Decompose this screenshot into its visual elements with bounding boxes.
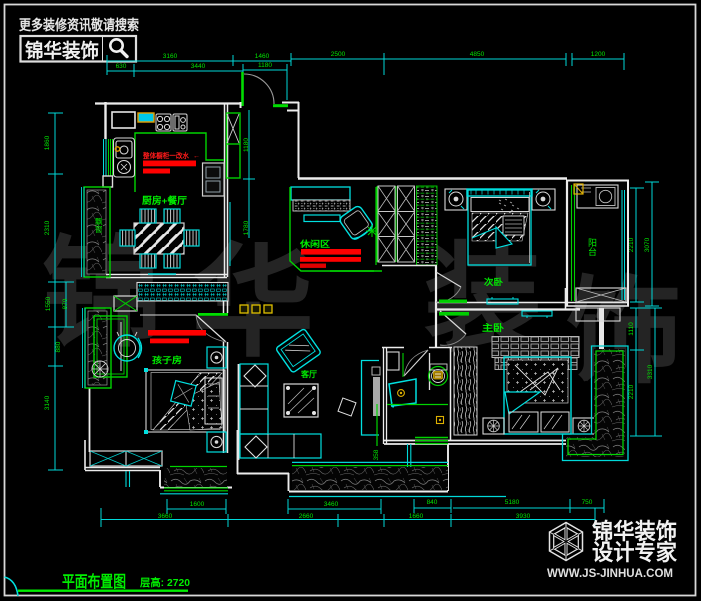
svg-text:2660: 2660	[299, 513, 314, 520]
svg-text:2310: 2310	[44, 220, 51, 235]
svg-text:358: 358	[373, 449, 380, 460]
svg-text:更多装修资讯敬请搜索: 更多装修资讯敬请搜索	[19, 17, 139, 33]
svg-text:WWW.JS-JINHUA.COM: WWW.JS-JINHUA.COM	[547, 566, 673, 580]
svg-text:休闲区: 休闲区	[299, 239, 331, 249]
svg-text:2210: 2210	[628, 384, 635, 399]
svg-text:台: 台	[588, 246, 597, 257]
svg-text:3440: 3440	[191, 63, 206, 70]
svg-text:锦华装饰: 锦华装饰	[25, 39, 99, 62]
svg-text:3930: 3930	[516, 513, 531, 520]
svg-text:窗: 窗	[95, 224, 103, 234]
svg-text:880: 880	[55, 341, 62, 352]
svg-text:1460: 1460	[255, 53, 270, 60]
svg-text:整体橱柜一改水: 整体橱柜一改水	[142, 151, 190, 160]
svg-text:1600: 1600	[190, 501, 205, 508]
svg-text:3070: 3070	[644, 237, 651, 252]
svg-text:客厅: 客厅	[300, 369, 317, 379]
svg-text:3140: 3140	[44, 395, 51, 410]
svg-text:1660: 1660	[409, 513, 424, 520]
svg-text:630: 630	[116, 63, 127, 70]
svg-text:1550: 1550	[45, 296, 52, 311]
svg-text:1110: 1110	[628, 322, 635, 336]
svg-text:←: ←	[193, 153, 200, 160]
svg-text:5180: 5180	[505, 499, 520, 506]
svg-text:1200: 1200	[591, 51, 606, 58]
svg-text:设计专家: 设计专家	[592, 540, 678, 565]
svg-text:主卧: 主卧	[482, 322, 504, 333]
svg-text:厨房+餐厅: 厨房+餐厅	[142, 195, 188, 207]
svg-text:1180: 1180	[258, 62, 272, 69]
svg-text:870: 870	[62, 298, 69, 309]
svg-text:3660: 3660	[158, 513, 173, 520]
svg-text:3160: 3160	[163, 53, 178, 60]
svg-text:层高: 2720: 层高: 2720	[140, 576, 190, 589]
svg-text:3310: 3310	[647, 364, 654, 379]
svg-text:750: 750	[582, 499, 593, 506]
svg-text:1180: 1180	[243, 138, 250, 152]
svg-text:2210: 2210	[628, 237, 635, 252]
svg-text:孩子房: 孩子房	[152, 355, 182, 365]
svg-text:平面布置图: 平面布置图	[62, 572, 126, 591]
svg-text:840: 840	[427, 499, 438, 506]
svg-text:2500: 2500	[331, 51, 346, 58]
svg-text:次卧: 次卧	[484, 277, 504, 287]
svg-text:4850: 4850	[470, 51, 485, 58]
svg-text:3460: 3460	[324, 501, 339, 508]
svg-text:1780: 1780	[243, 220, 250, 235]
svg-text:1860: 1860	[44, 135, 51, 150]
